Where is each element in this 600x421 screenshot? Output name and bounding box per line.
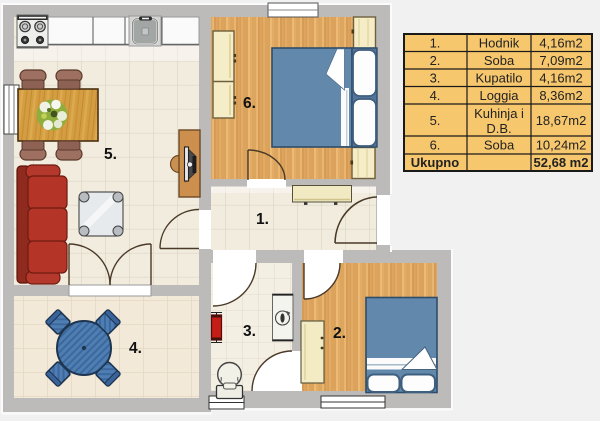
svg-text:52,68 m2: 52,68 m2 [534,155,589,170]
svg-text:Kupatilo: Kupatilo [476,71,523,86]
svg-text:3.: 3. [243,323,256,340]
svg-text:3.: 3. [430,71,441,86]
svg-text:4,16m2: 4,16m2 [539,71,582,86]
svg-text:Soba: Soba [484,53,515,68]
svg-text:Ukupno: Ukupno [411,155,459,170]
svg-text:Loggia: Loggia [479,88,519,103]
svg-text:6.: 6. [243,95,256,112]
svg-text:8,36m2: 8,36m2 [539,88,582,103]
svg-text:Kuhinja i: Kuhinja i [474,106,524,121]
svg-text:18,67m2: 18,67m2 [536,113,587,128]
svg-text:Hodnik: Hodnik [479,36,520,51]
svg-text:1.: 1. [430,36,441,51]
svg-text:7,09m2: 7,09m2 [539,53,582,68]
svg-text:4.: 4. [129,340,142,357]
svg-text:2.: 2. [333,325,346,342]
svg-text:1.: 1. [256,211,269,228]
svg-text:10,24m2: 10,24m2 [536,138,587,153]
svg-text:4,16m2: 4,16m2 [539,36,582,51]
svg-text:2.: 2. [430,53,441,68]
svg-text:6.: 6. [430,138,441,153]
svg-text:D.B.: D.B. [486,121,511,136]
svg-text:4.: 4. [430,88,441,103]
svg-text:Soba: Soba [484,138,515,153]
svg-text:5.: 5. [104,146,117,163]
svg-text:5.: 5. [430,113,441,128]
